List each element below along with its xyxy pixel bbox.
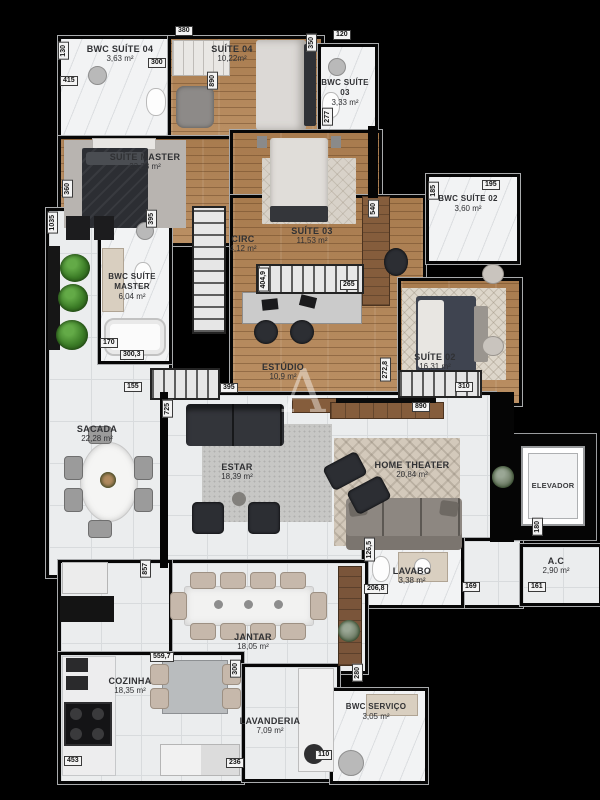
chair xyxy=(134,488,153,512)
dimension-label: 170 xyxy=(100,338,118,348)
armchair xyxy=(192,502,224,534)
dimension-label: 310 xyxy=(455,382,473,392)
cabinet xyxy=(94,216,114,240)
dimension-label: 1035 xyxy=(47,212,58,234)
room-ac-floor xyxy=(520,544,600,606)
chair xyxy=(88,520,112,538)
room-label-bwc-suite-02: BWC SUÍTE 02 3,60 m² xyxy=(436,194,500,213)
sink xyxy=(328,58,346,76)
room-label-cozinha: COZINHA 18,35 m² xyxy=(85,676,175,695)
plant xyxy=(58,284,88,312)
chair xyxy=(64,456,83,480)
elevator-cab: ELEVADOR xyxy=(521,446,585,526)
dimension-label: 195 xyxy=(482,180,500,190)
wall-segment xyxy=(160,392,168,568)
pouf xyxy=(482,264,504,284)
chair xyxy=(280,572,306,589)
dimension-label: 272,8 xyxy=(380,358,391,382)
room-label-lavabo: LAVABO 3,38 m² xyxy=(377,566,447,585)
plant xyxy=(338,620,360,642)
burner xyxy=(70,708,82,720)
dimension-label: 725 xyxy=(162,400,173,418)
dimension-label: 404,9 xyxy=(258,268,269,292)
dimension-label: 161 xyxy=(528,582,546,592)
dimension-label: 453 xyxy=(64,756,82,766)
armchair xyxy=(176,86,214,128)
pouf xyxy=(482,336,504,356)
room-label-ac: A.C 2,90 m² xyxy=(526,556,586,575)
dimension-label: 415 xyxy=(60,76,78,86)
dimension-label: 110 xyxy=(315,750,332,760)
room-label-bwc-servico: BWC SERVIÇO 3,05 m² xyxy=(336,702,416,721)
tall-cabinet xyxy=(338,566,362,666)
dimension-label: 300 xyxy=(230,660,241,678)
room-label-jantar: JANTAR 18,05 m² xyxy=(208,632,298,651)
room-label-bwc-suite-master: BWC SUÍTE MASTER 6,04 m² xyxy=(100,272,164,301)
dimension-label: 890 xyxy=(412,402,430,412)
dimension-label: 206,8 xyxy=(364,584,388,594)
elevator-shaft: ELEVADOR xyxy=(510,434,596,540)
elevator-label: ELEVADOR xyxy=(532,481,575,491)
room-label-sacada: SACADA 22,28 m² xyxy=(52,424,142,443)
dimension-label: 350 xyxy=(306,34,317,52)
laptop xyxy=(261,298,278,311)
dimension-label: 300 xyxy=(148,58,166,68)
room-label-suite-02: SUÍTE 02 16,31 m² xyxy=(395,352,475,371)
dimension-label: 236 xyxy=(226,758,244,768)
dimension-label: 890 xyxy=(207,72,218,90)
wall-segment xyxy=(368,126,378,198)
dimension-label: 180 xyxy=(532,518,543,536)
room-label-suite-04: SUÍTE 04 10,22m² xyxy=(182,44,282,63)
dimension-label: 540 xyxy=(368,200,379,218)
centerpiece xyxy=(244,600,253,609)
room-label-lavanderia: LAVANDERIA 7,09 m² xyxy=(215,716,325,735)
dimension-label: 130 xyxy=(58,42,69,60)
side-table xyxy=(232,492,246,506)
dimension-label: 857 xyxy=(140,560,151,578)
chair xyxy=(250,572,276,589)
floor-plan: ELEVADOR A BWC SUÍTE 04 3,63 m² SUÍTE 04… xyxy=(0,0,600,800)
room-label-home-theater: HOME THEATER 20,84 m² xyxy=(352,460,472,479)
dimension-label: 380 xyxy=(175,26,193,36)
bed-footer xyxy=(270,206,328,222)
room-label-bwc-suite-03: BWC SUÍTE 03 3,33 m² xyxy=(320,78,370,107)
plant xyxy=(56,320,88,350)
dimension-label: 169 xyxy=(462,582,480,592)
burner xyxy=(70,728,82,740)
chair xyxy=(170,592,187,620)
dimension-label: 185 xyxy=(428,182,439,200)
room-bwc-suite-02-floor xyxy=(426,174,520,264)
room-label-circ: CIRC 4,12 m² xyxy=(213,234,273,253)
desk-chair xyxy=(384,248,408,276)
dimension-label: 280 xyxy=(352,664,363,682)
centerpiece xyxy=(274,600,283,609)
nightstand xyxy=(257,136,267,148)
dimension-label: 277 xyxy=(322,108,333,126)
centerpiece xyxy=(214,600,223,609)
toilet xyxy=(146,88,166,116)
office-chair xyxy=(254,320,278,344)
room-label-suite-master: SUÍTE MASTER 23,23 m² xyxy=(85,152,205,171)
dimension-label: 155 xyxy=(124,382,142,392)
sink-unit xyxy=(66,658,88,672)
office-chair xyxy=(290,320,314,344)
room-label-estar: ESTAR 18,39 m² xyxy=(197,462,277,481)
dimension-label: 395 xyxy=(220,383,238,393)
sofa xyxy=(186,404,284,446)
plant xyxy=(60,254,90,282)
dimension-label: 126,5 xyxy=(364,538,375,562)
burner xyxy=(92,708,104,720)
dimension-label: 120 xyxy=(333,30,351,40)
room-label-suite-03: SUÍTE 03 11,53 m² xyxy=(272,226,352,245)
dimension-label: 265 xyxy=(340,280,358,290)
armchair xyxy=(248,502,280,534)
buffet xyxy=(60,596,114,622)
table-flowers xyxy=(100,472,116,488)
burner xyxy=(92,728,104,740)
cushion xyxy=(439,500,459,517)
shower-drain xyxy=(338,750,364,776)
plant xyxy=(492,466,514,488)
dimension-label: 300,3 xyxy=(120,350,144,360)
room-label-estudio: ESTÚDIO 10,9 m² xyxy=(238,362,328,381)
dimension-label: 360 xyxy=(62,180,73,198)
cabinet xyxy=(66,216,90,240)
sink xyxy=(88,66,107,85)
dimension-label: 395 xyxy=(146,210,157,228)
sideboard xyxy=(62,562,108,594)
chair xyxy=(64,488,83,512)
stool xyxy=(222,688,241,709)
chair xyxy=(190,572,216,589)
nightstand xyxy=(331,136,341,148)
chair xyxy=(310,592,327,620)
headboard xyxy=(304,44,316,126)
chair xyxy=(134,456,153,480)
dimension-label: 559,7 xyxy=(150,652,174,662)
bookshelf xyxy=(192,206,226,334)
chair xyxy=(220,572,246,589)
room-hall-floor xyxy=(455,538,523,608)
